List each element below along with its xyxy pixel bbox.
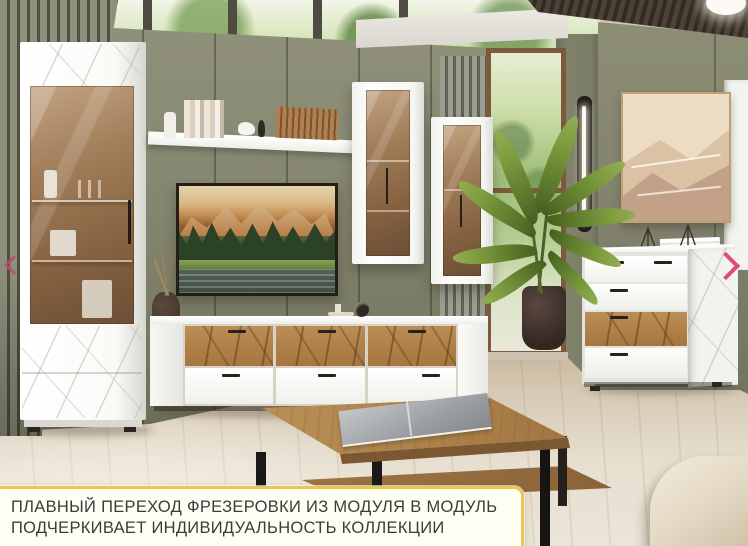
dunes-wall-art [621, 92, 731, 223]
tall-display-cabinet [20, 42, 146, 432]
furniture-slide: ПЛАВНЫЙ ПЕРЕХОД ФРЕЗЕРОВКИ ИЗ МОДУЛЯ В М… [0, 0, 748, 546]
shelf-decor-vase [44, 170, 57, 198]
shelf-bird-figurine [238, 122, 255, 135]
tv-lake [179, 268, 335, 293]
tv-panel [176, 183, 338, 296]
hanging-cabinet-handle[interactable] [386, 168, 388, 204]
hanging-cabinet-left [352, 82, 424, 264]
table-leg [540, 440, 550, 546]
shelf-black-decor [258, 120, 265, 137]
wall-shelf [148, 94, 360, 158]
cabinet-foot [124, 427, 136, 432]
hanging-cabinet-glass[interactable] [366, 90, 410, 256]
caption-banner: ПЛАВНЫЙ ПЕРЕХОД ФРЕЗЕРОВКИ ИЗ МОДУЛЯ В М… [0, 486, 524, 546]
cabinet-plinth [24, 420, 142, 427]
tv-grass-bank [179, 260, 335, 269]
drawer-handle[interactable] [228, 330, 246, 333]
drawer-handle[interactable] [222, 374, 240, 377]
cabinet-door-handle[interactable] [128, 200, 131, 244]
potted-palm-plant [430, 100, 620, 360]
commode-foot [712, 382, 722, 387]
drawer-handle[interactable] [318, 330, 336, 333]
cabinet-top-milling [24, 44, 140, 86]
hanging-cabinet-shelf-line [367, 210, 409, 212]
drawer-handle[interactable] [408, 330, 426, 333]
cabinet-drawer-seam [22, 372, 142, 374]
shelf-books [184, 100, 224, 138]
stand-candle-decor [335, 304, 341, 313]
hanging-cabinet-shelf-line [367, 160, 409, 162]
drawer-handle[interactable] [422, 374, 440, 377]
stand-clock-decor [354, 302, 369, 317]
stand-tray-decor [328, 312, 354, 316]
shelf-slat-decor [275, 107, 338, 141]
caption-line-2: ПОДЧЕРКИВАЕТ ИНДИВИДУАЛЬНОСТЬ КОЛЛЕКЦИИ [11, 518, 509, 539]
stand-left-side [150, 324, 183, 406]
commode-base-shadow [584, 382, 732, 387]
glass-shelf-line [32, 200, 132, 202]
caption-line-1: ПЛАВНЫЙ ПЕРЕХОД ФРЕЗЕРОВКИ ИЗ МОДУЛЯ В М… [11, 497, 509, 518]
shelf-vase [164, 112, 176, 138]
shelf-decor-boxes [50, 230, 76, 256]
cabinet-foot [28, 427, 40, 432]
commode-foot [590, 386, 600, 391]
drawer-handle[interactable] [318, 374, 336, 377]
plant-pot [522, 286, 566, 350]
shelf-decor-boxes [82, 280, 112, 318]
shelf-decor-glassware [72, 180, 106, 198]
drawer-handle[interactable] [654, 261, 672, 264]
glass-shelf-line [32, 260, 132, 262]
